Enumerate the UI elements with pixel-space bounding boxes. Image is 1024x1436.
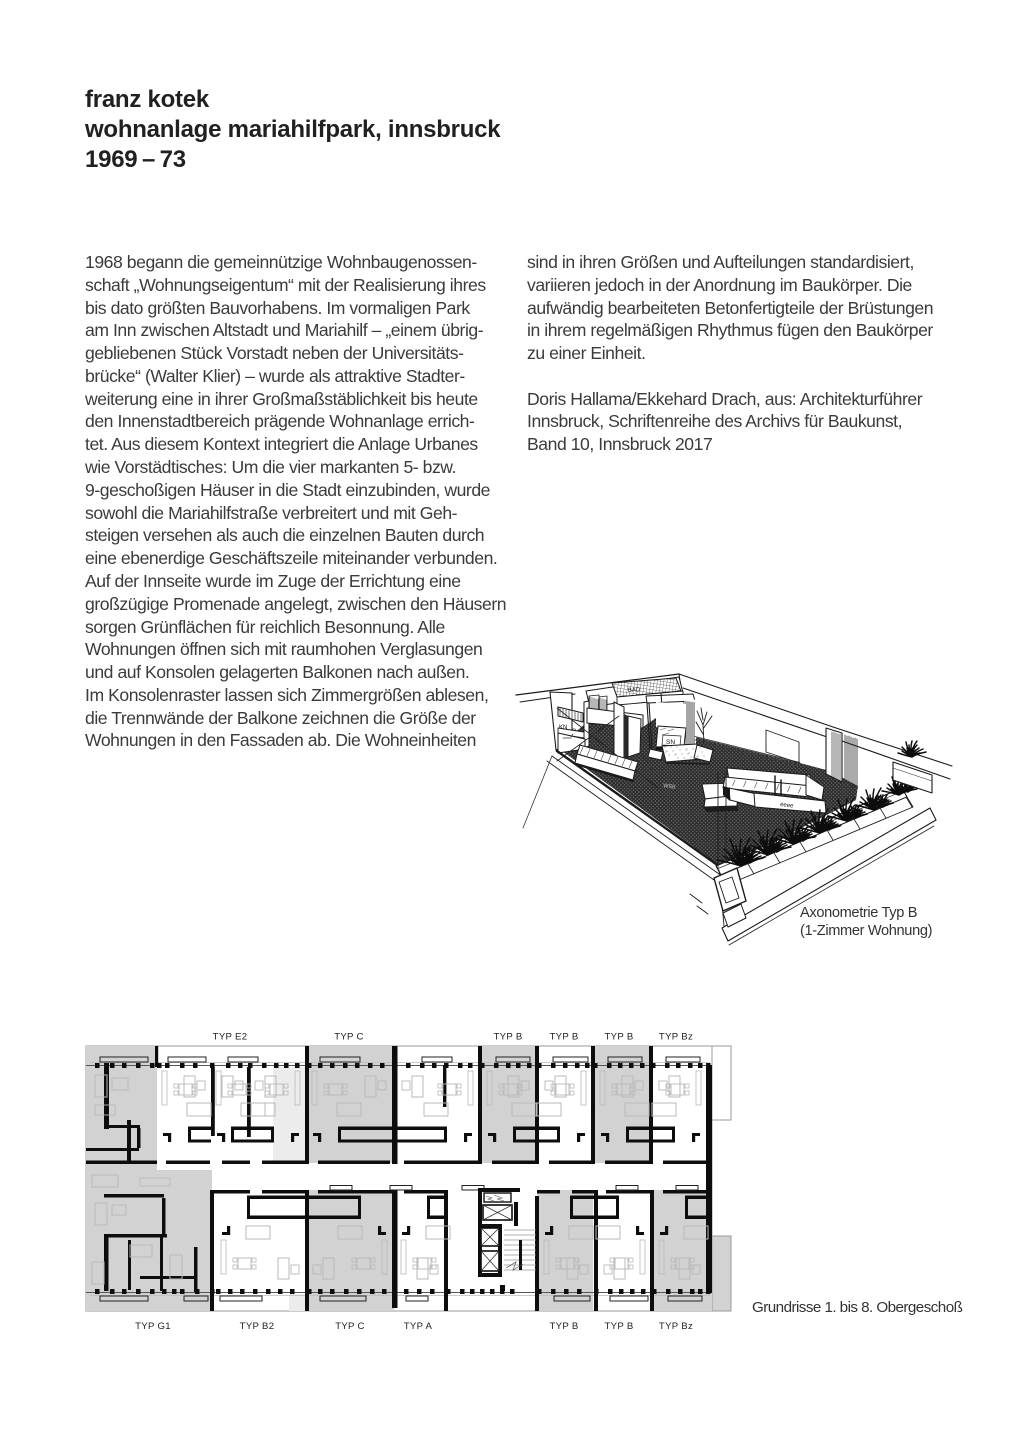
svg-text:TYP E2: TYP E2 — [213, 1032, 248, 1043]
svg-text:TYP C: TYP C — [334, 1032, 364, 1043]
svg-text:TYP B: TYP B — [549, 1032, 578, 1043]
svg-text:BAD: BAD — [628, 687, 641, 694]
svg-text:TYP G1: TYP G1 — [135, 1321, 171, 1332]
svg-text:TYP Bz: TYP Bz — [659, 1032, 693, 1043]
svg-text:TYP A: TYP A — [404, 1321, 433, 1332]
svg-text:TYP Bz: TYP Bz — [659, 1321, 693, 1332]
svg-text:TYP B2: TYP B2 — [240, 1321, 275, 1332]
svg-text:TYP B: TYP B — [604, 1321, 633, 1332]
svg-text:TYP B: TYP B — [493, 1032, 522, 1043]
svg-text:TYP C: TYP C — [335, 1321, 365, 1332]
svg-text:TYP B: TYP B — [549, 1321, 578, 1332]
svg-text:TYP B: TYP B — [604, 1032, 633, 1043]
